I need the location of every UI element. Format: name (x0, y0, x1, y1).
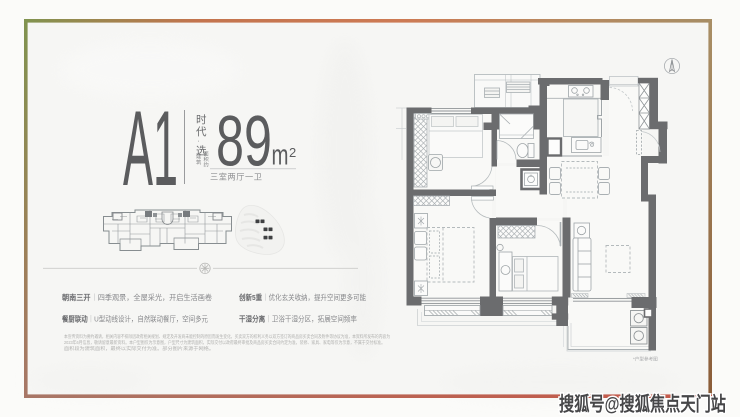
svg-text:本宣传资料为要约邀请，相关内容不排除因政府相关规划、规定及开: 本宣传资料为要约邀请，相关内容不排除因政府相关规划、规定及开发商未能控制的原因而… (64, 333, 390, 340)
svg-text:筑: 筑 (196, 158, 202, 166)
svg-text:·: · (198, 138, 200, 145)
svg-text:创新5重｜优化玄关收纳，提升空间更多可能: 创新5重｜优化玄关收纳，提升空间更多可能 (238, 293, 366, 302)
svg-text:餐厨联动｜U型动线设计，自然联动餐厅，空间多元: 餐厨联动｜U型动线设计，自然联动餐厅，空间多元 (61, 315, 208, 324)
svg-text:A1: A1 (123, 88, 178, 208)
svg-text:89: 89 (216, 103, 272, 182)
svg-text:代: 代 (196, 126, 207, 138)
svg-text:2: 2 (289, 145, 296, 160)
svg-text:干湿分离｜卫浴干湿分区，拓展空间频率: 干湿分离｜卫浴干湿分区，拓展空间频率 (239, 315, 357, 324)
svg-text:m: m (272, 140, 289, 172)
svg-text:建: 建 (196, 152, 201, 160)
svg-text:朝南三开｜四季观景，全屋采光，开启生活画卷: 朝南三开｜四季观景，全屋采光，开启生活画卷 (62, 293, 212, 302)
svg-text:约: 约 (204, 161, 209, 169)
svg-text:搜狐号@搜狐焦点天门站: 搜狐号@搜狐焦点天门站 (559, 393, 726, 416)
svg-text:2023年6月信息，敬请留意最新资料。本户型图仅为示意图，户: 2023年6月信息，敬请留意最新资料。本户型图仅为示意图，户型尺寸为建筑面积，实… (64, 339, 385, 346)
svg-text:面积段为建筑面积，最终以实际交付为准。部分图片来源于网络。: 面积段为建筑面积，最终以实际交付为准。部分图片来源于网络。 (64, 345, 214, 352)
svg-text:*户型参考图: *户型参考图 (633, 356, 658, 363)
svg-text:时: 时 (196, 114, 207, 126)
svg-text:三室两厅一卫: 三室两厅一卫 (210, 172, 262, 182)
